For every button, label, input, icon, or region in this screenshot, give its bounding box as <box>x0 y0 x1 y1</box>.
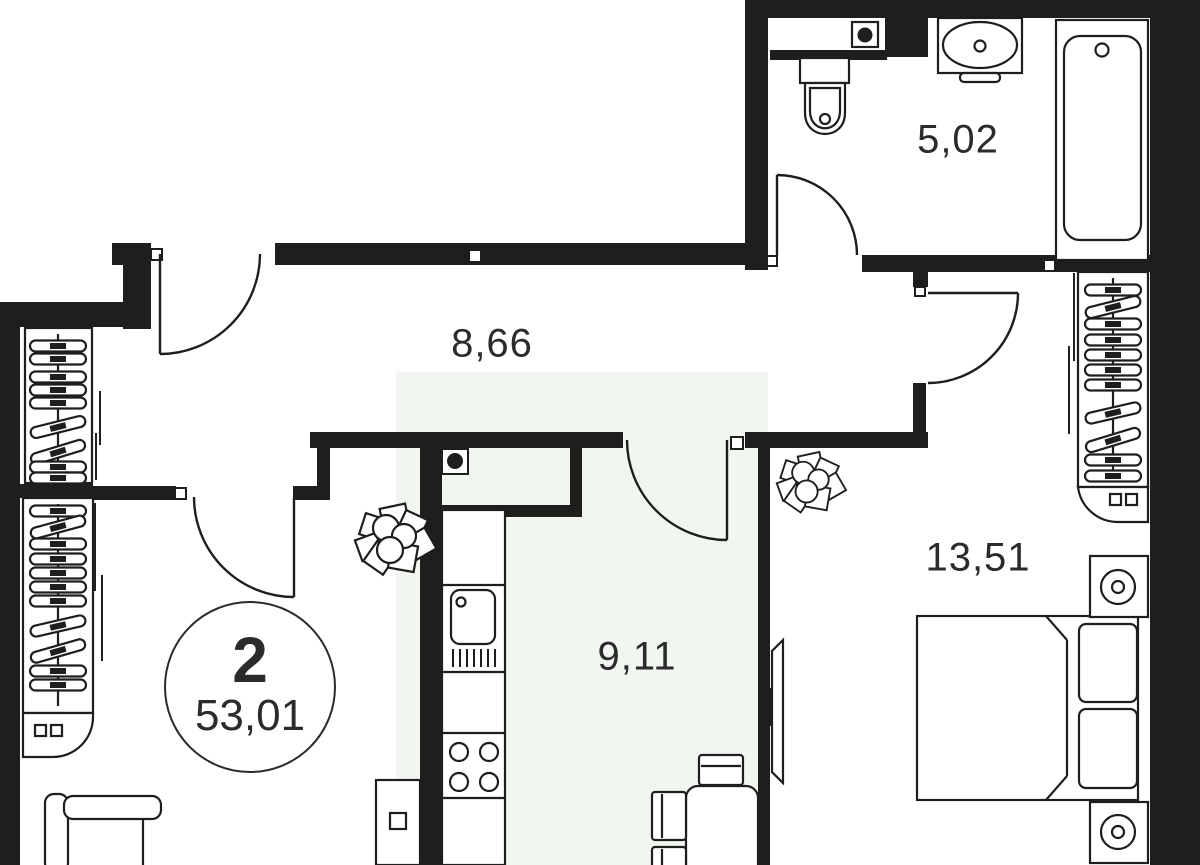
wall-niche-v <box>570 448 582 505</box>
wall-entry-jamb <box>112 243 151 265</box>
entry-door-icon <box>160 254 260 354</box>
tv-icon <box>772 640 783 783</box>
kitchen-counter-icon <box>442 510 505 865</box>
floor-plan: 5,02 8,66 9,11 13,51 2 53,01 <box>0 0 1200 865</box>
bathroom-shelf <box>852 22 878 47</box>
wall-bedroom-stub <box>913 383 926 432</box>
appliance-icon <box>376 780 420 865</box>
unit-badge: 2 53,01 <box>164 601 336 773</box>
bathtub-icon <box>1056 20 1148 260</box>
unit-total-area: 53,01 <box>195 691 305 741</box>
wall-bath-shaft <box>885 18 928 57</box>
washbasin-icon <box>938 18 1022 82</box>
wall-bedroom-nub <box>913 272 928 287</box>
wall-top <box>748 0 1152 18</box>
room-area-label-kitchen: 9,11 <box>598 635 677 680</box>
wall-bathroom-left <box>745 0 768 270</box>
wardrobe-hallway <box>25 328 92 484</box>
nightstand-lamp-icon <box>1090 802 1148 863</box>
toilet-icon <box>800 58 849 134</box>
dining-table-icon <box>686 786 758 865</box>
living-room-door-icon <box>194 497 294 597</box>
bed-icon <box>917 616 1138 800</box>
pillow-icon <box>1079 709 1137 788</box>
wall-left <box>0 302 20 865</box>
room-area-label-hallway: 8,66 <box>451 322 533 367</box>
wardrobe-living <box>23 498 93 757</box>
wall-tv-nub <box>758 688 772 726</box>
wardrobe-bedroom <box>1078 272 1148 522</box>
wall-hall-south-east <box>745 432 928 448</box>
room-area-label-bathroom: 5,02 <box>917 118 999 163</box>
nightstand-lamp-icon <box>1090 556 1148 617</box>
wall-hall-south-west <box>310 432 623 448</box>
wall-central <box>420 448 442 865</box>
wall-hall-top <box>275 243 747 265</box>
pillow-icon <box>1079 624 1137 702</box>
wall-wardrobe-divider <box>20 484 93 498</box>
wall-living-north-a <box>93 486 176 500</box>
bathroom-door-icon <box>777 175 857 255</box>
wall-left-step-v <box>123 265 151 329</box>
wall-living-north-b <box>293 486 330 500</box>
ventilation-riser-icon <box>442 449 468 474</box>
plant-icon <box>777 452 846 512</box>
sofa-icon <box>45 794 161 865</box>
unit-rooms-count: 2 <box>232 633 268 687</box>
wall-right <box>1150 0 1200 865</box>
room-area-label-bedroom: 13,51 <box>925 536 1030 581</box>
wall-kitchen-bedroom <box>758 448 770 865</box>
bedroom-door-icon <box>928 293 1018 383</box>
